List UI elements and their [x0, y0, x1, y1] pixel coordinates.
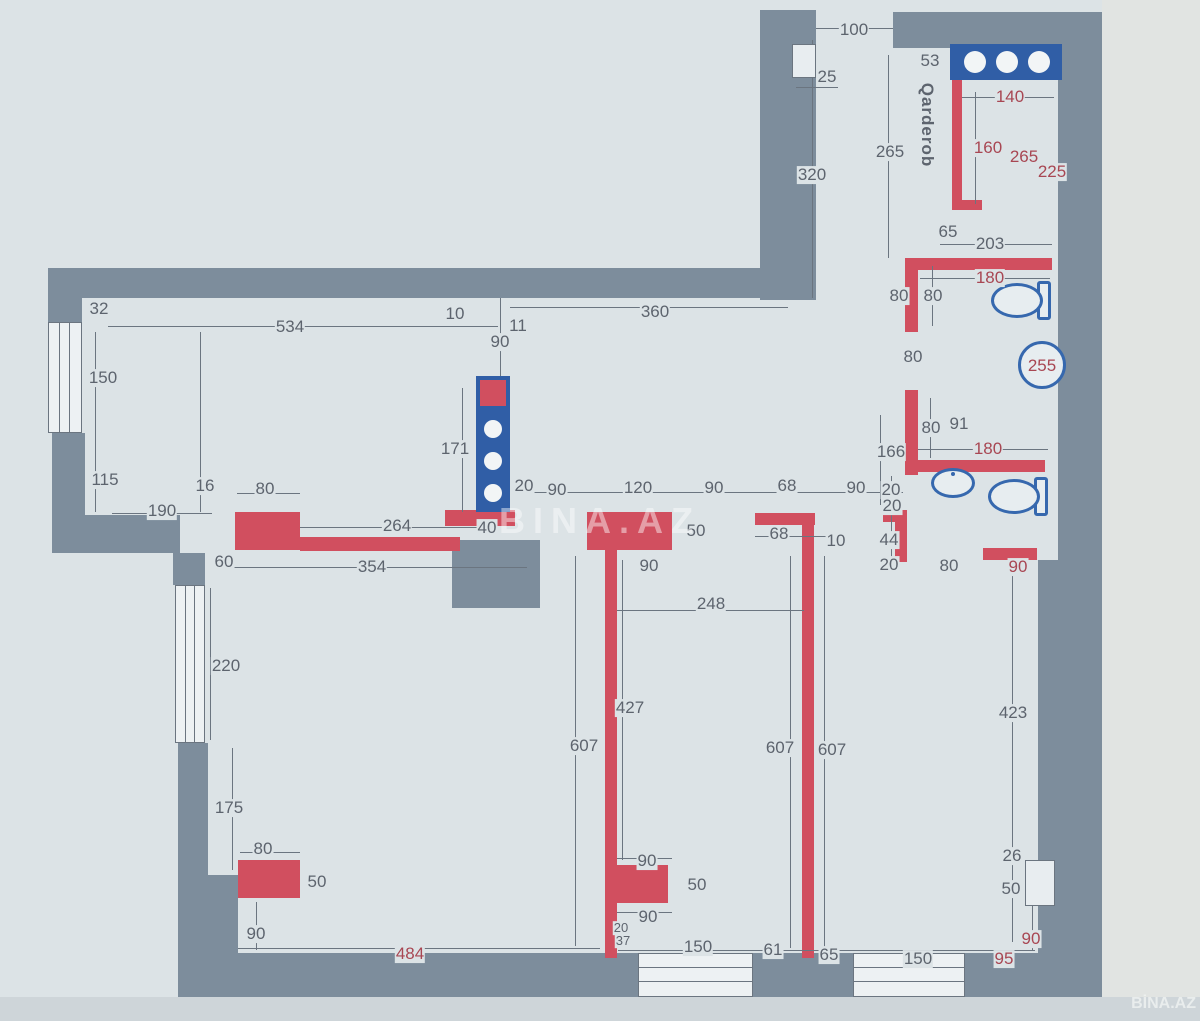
dimension-label: 65 [819, 946, 840, 964]
dimension-label: 37 [615, 934, 631, 948]
dimension-label: 90 [547, 481, 568, 499]
dimension-label: 20 [879, 556, 900, 574]
room-label-qarderob: Qarderob [917, 83, 937, 168]
radiator-column [476, 376, 510, 512]
dimension-label: 115 [90, 471, 119, 489]
dimension-label: 90 [246, 925, 267, 943]
dimension-label: 120 [623, 479, 653, 497]
dimension-label: 264 [382, 517, 412, 535]
dimension-label: 32 [89, 300, 110, 318]
dimension-label: 423 [998, 704, 1028, 722]
dimension-label: 607 [817, 741, 847, 759]
wall-left-pier-low [178, 743, 208, 875]
column-red-cap [480, 380, 506, 406]
dimension-label: 80 [923, 287, 944, 305]
dimension-label: 60 [214, 553, 235, 571]
dimension-label: 255 [1027, 357, 1057, 375]
dimension-label: 90 [1008, 558, 1029, 576]
dimension-label: 150 [903, 950, 933, 968]
shelf-circle-icon [996, 51, 1018, 73]
dimension-label: 160 [973, 139, 1003, 157]
dimension-label: 190 [147, 502, 177, 520]
dimension-label: 90 [638, 908, 659, 926]
wall-right-upper [1058, 12, 1102, 560]
wall-right-lower [1038, 560, 1102, 997]
dimension-label: 90 [637, 852, 658, 870]
dimension-label: 427 [615, 699, 645, 717]
column-circle-icon [484, 420, 502, 438]
wall-left-corner [173, 553, 205, 585]
dimension-label: 61 [763, 941, 784, 959]
red-wall-left-thin [300, 537, 460, 551]
dimension-label: 150 [683, 938, 713, 956]
dimension-label: 68 [769, 525, 790, 543]
dimension-label: 180 [973, 440, 1003, 458]
shelf-circle-icon [964, 51, 986, 73]
watermark-corner: BİNA.AZ [1131, 995, 1196, 1013]
dimension-label: 225 [1037, 163, 1067, 181]
dimension-label: 171 [440, 440, 470, 458]
dimension-label: 534 [275, 318, 305, 336]
dimension-label: 166 [876, 443, 906, 461]
wall-top-main [48, 268, 792, 298]
red-wall-bath2-v [905, 390, 918, 475]
column-circle-icon [484, 452, 502, 470]
dimension-label: 90 [639, 557, 660, 575]
dimension-label: 80 [939, 557, 960, 575]
right-wall-notch [1025, 860, 1055, 906]
red-block-bottom-left [238, 860, 300, 898]
dimension-label: 248 [696, 595, 726, 613]
dimension-label: 90 [1021, 930, 1042, 948]
dimension-label: 80 [889, 287, 910, 305]
toilet-icon [991, 283, 1043, 318]
dimension-label: 484 [395, 945, 425, 963]
wall-hall-stub [452, 540, 540, 608]
dimension-label: 80 [253, 840, 274, 858]
red-wall-bath2-h [918, 460, 1045, 472]
dimension-label: 175 [214, 799, 244, 817]
dimension-label: 50 [687, 876, 708, 894]
dimension-label: 265 [875, 143, 905, 161]
red-wall-wardrobe-foot [952, 200, 982, 210]
sink-faucet-icon [951, 472, 955, 476]
wardrobe-shelf [950, 44, 1062, 80]
dimension-label: 80 [255, 480, 276, 498]
wall-left-step [85, 515, 180, 553]
dimension-label: 607 [765, 739, 795, 757]
red-wall-wardrobe-vert [952, 80, 962, 210]
dimension-label: 10 [826, 532, 847, 550]
shelf-circle-icon [1028, 51, 1050, 73]
entry-door-notch [792, 44, 816, 78]
dimension-label: 80 [921, 419, 942, 437]
dimension-label: 360 [640, 303, 670, 321]
dimension-label: 50 [1001, 880, 1022, 898]
photo-background-bottom [0, 997, 1200, 1021]
dimension-label: 180 [975, 269, 1005, 287]
dim-line [796, 87, 838, 88]
dimension-label: 320 [797, 166, 827, 184]
dimension-label: 16 [195, 477, 216, 495]
dimension-label: 20 [514, 477, 535, 495]
dimension-label: 65 [938, 223, 959, 241]
toilet-icon [988, 479, 1040, 514]
red-block-left [235, 512, 300, 550]
dimension-label: 140 [995, 88, 1025, 106]
dimension-label: 203 [975, 235, 1005, 253]
dimension-label: 68 [777, 477, 798, 495]
dimension-label: 91 [949, 415, 970, 433]
dimension-label: 607 [569, 737, 599, 755]
wall-left-pier-mid [52, 433, 85, 553]
dimension-label: 90 [490, 333, 511, 351]
dimension-label: 20 [882, 497, 903, 515]
dimension-label: 220 [211, 657, 241, 675]
window-left-220 [175, 585, 205, 743]
wall-left-pier-top [48, 296, 82, 324]
dimension-label: 10 [445, 305, 466, 323]
dimension-label: 80 [903, 348, 924, 366]
red-block-mid-bottom [610, 865, 668, 903]
photo-background-right [1102, 0, 1200, 1021]
dimension-label: 90 [704, 479, 725, 497]
dimension-label: 26 [1002, 847, 1023, 865]
dimension-label: 40 [477, 519, 498, 537]
dimension-label: 95 [994, 950, 1015, 968]
dimension-label: 100 [839, 21, 869, 39]
dimension-label: 265 [1009, 148, 1039, 166]
floor-plan: 1002532053Qarderob2651401602652256520318… [0, 0, 1200, 1021]
dimension-label: 354 [357, 558, 387, 576]
dimension-label: 25 [817, 68, 838, 86]
watermark-center: BINA.AZ [499, 500, 701, 542]
dimension-label: 53 [920, 52, 941, 70]
dimension-label: 50 [307, 873, 328, 891]
dimension-label: 11 [508, 317, 528, 335]
window-bottom-1 [638, 953, 753, 997]
window-left-150 [48, 322, 82, 433]
dimension-label: 44 [879, 531, 900, 549]
dimension-label: 20 [881, 481, 902, 499]
dimension-label: 90 [846, 479, 867, 497]
dimension-label: 150 [88, 369, 118, 387]
red-wall-right-vert [802, 523, 814, 958]
